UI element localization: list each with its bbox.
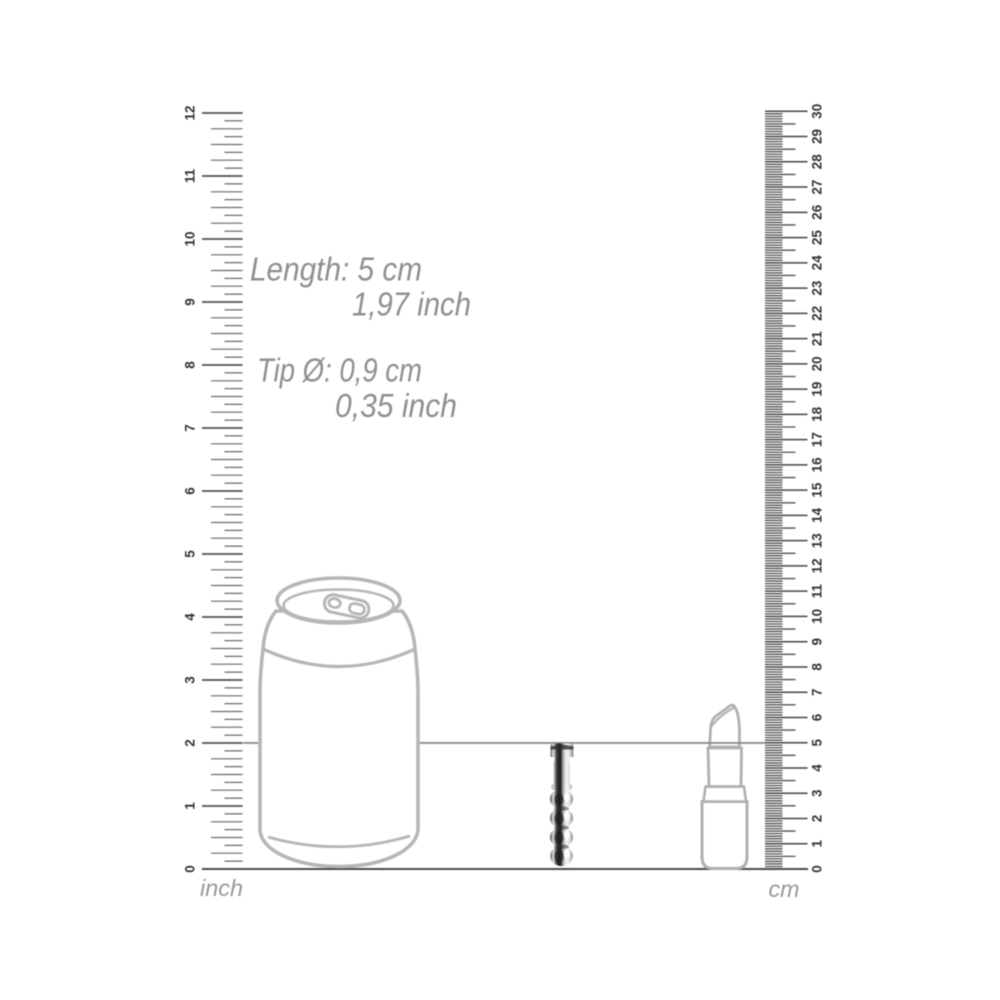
svg-text:3: 3 [183, 676, 198, 684]
svg-text:14: 14 [810, 507, 825, 523]
svg-text:13: 13 [810, 533, 825, 549]
svg-text:6: 6 [810, 713, 825, 721]
svg-text:30: 30 [810, 104, 825, 119]
svg-text:6: 6 [183, 487, 198, 495]
svg-text:29: 29 [810, 129, 825, 144]
svg-text:11: 11 [183, 168, 198, 183]
svg-text:10: 10 [183, 231, 198, 246]
svg-text:8: 8 [810, 663, 825, 671]
svg-text:27: 27 [810, 180, 825, 195]
svg-text:1: 1 [183, 802, 198, 810]
svg-text:25: 25 [810, 230, 825, 246]
svg-text:16: 16 [810, 457, 825, 473]
svg-text:Tip Ø: 0,9 cm: Tip Ø: 0,9 cm [257, 352, 422, 389]
svg-text:9: 9 [810, 638, 825, 646]
svg-text:5: 5 [810, 738, 825, 746]
svg-text:3: 3 [810, 789, 825, 797]
svg-text:1: 1 [810, 839, 825, 847]
svg-text:17: 17 [810, 432, 825, 447]
svg-text:7: 7 [810, 688, 825, 696]
svg-text:28: 28 [810, 154, 825, 170]
svg-text:2: 2 [183, 739, 198, 747]
svg-text:4: 4 [810, 764, 825, 772]
svg-text:2: 2 [810, 815, 825, 823]
svg-text:0,35 inch: 0,35 inch [335, 387, 457, 424]
svg-text:inch: inch [200, 875, 243, 901]
svg-text:8: 8 [183, 361, 198, 369]
svg-text:12: 12 [810, 558, 825, 573]
svg-text:4: 4 [183, 613, 198, 621]
svg-text:5: 5 [183, 550, 198, 558]
svg-text:7: 7 [183, 424, 198, 432]
svg-text:18: 18 [810, 406, 825, 422]
svg-text:1,97 inch: 1,97 inch [352, 286, 471, 323]
svg-text:24: 24 [810, 255, 825, 271]
svg-text:11: 11 [810, 584, 825, 599]
svg-text:Length: 5 cm: Length: 5 cm [250, 251, 422, 288]
svg-text:22: 22 [810, 306, 825, 321]
svg-text:0: 0 [183, 865, 198, 873]
svg-text:9: 9 [183, 298, 198, 306]
svg-text:20: 20 [810, 356, 825, 371]
svg-text:21: 21 [810, 331, 825, 347]
svg-text:0: 0 [810, 865, 825, 873]
svg-text:26: 26 [810, 204, 825, 220]
svg-text:cm: cm [769, 876, 800, 902]
svg-text:15: 15 [810, 482, 825, 498]
svg-text:12: 12 [183, 105, 198, 120]
svg-text:23: 23 [810, 280, 825, 296]
svg-text:19: 19 [810, 382, 825, 397]
svg-text:10: 10 [810, 609, 825, 624]
